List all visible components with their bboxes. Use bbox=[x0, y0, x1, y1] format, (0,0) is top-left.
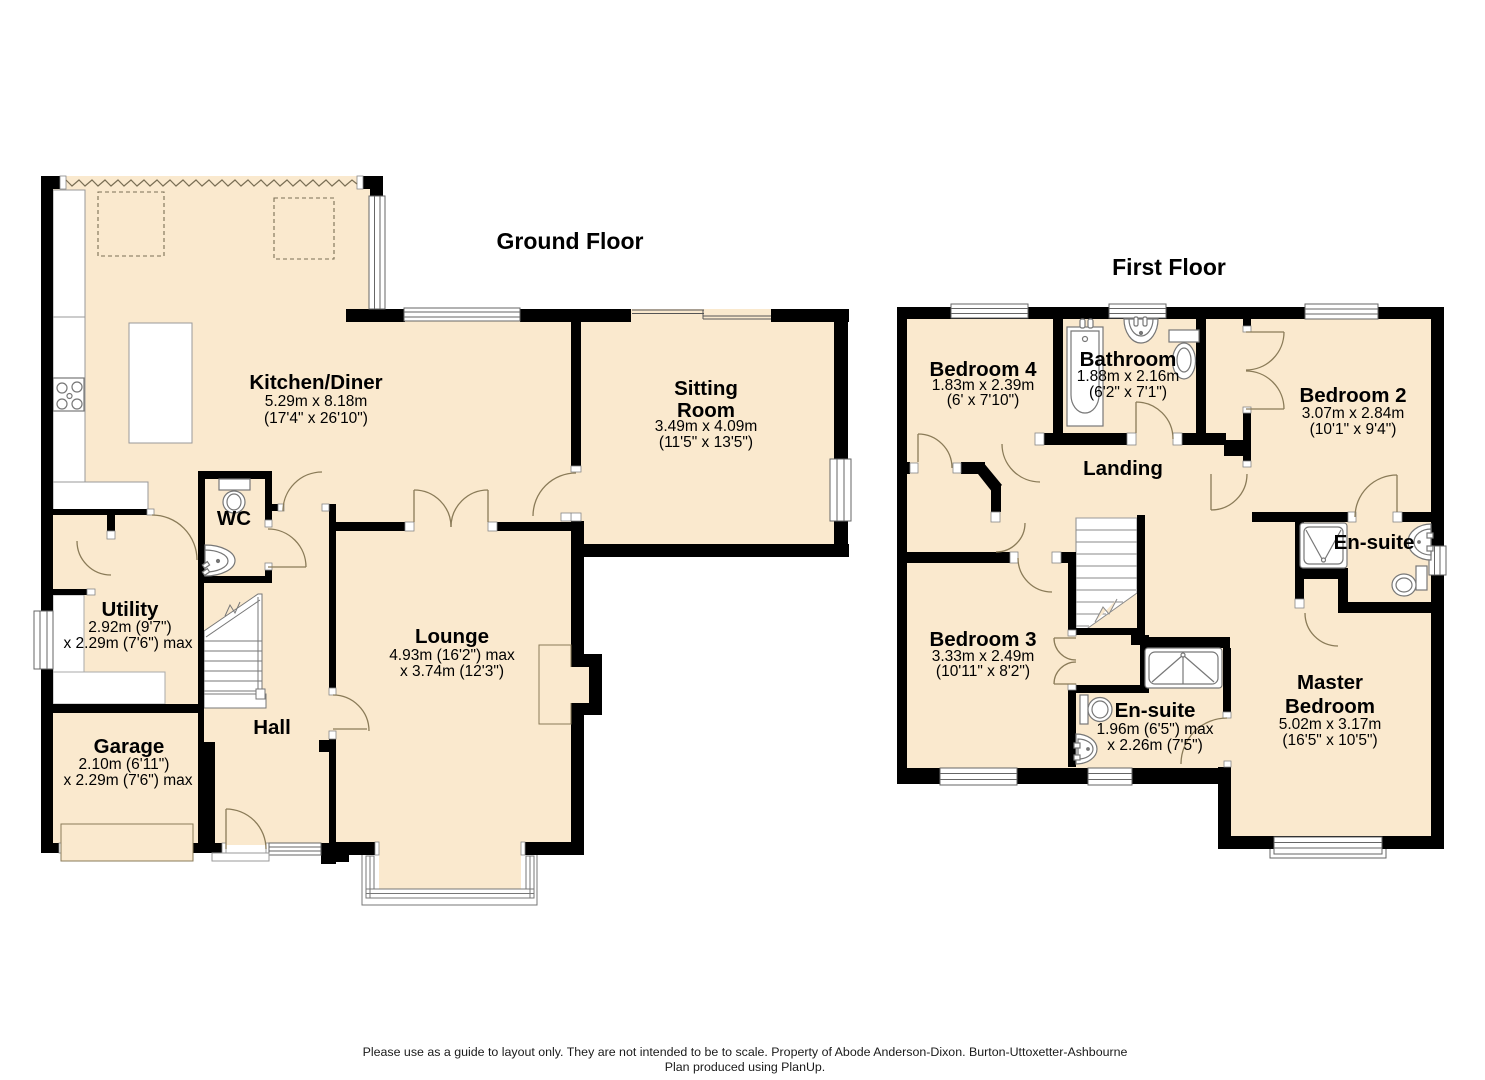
svg-text:(16'5" x 10'5"): (16'5" x 10'5") bbox=[1282, 732, 1377, 749]
svg-text:x 2.26m (7'5"): x 2.26m (7'5") bbox=[1107, 737, 1202, 754]
svg-text:3.49m x 4.09m: 3.49m x 4.09m bbox=[655, 418, 758, 435]
svg-text:Master: Master bbox=[1297, 671, 1363, 694]
svg-text:(17'4" x 26'10"): (17'4" x 26'10") bbox=[264, 410, 368, 427]
svg-text:First Floor: First Floor bbox=[1112, 254, 1226, 280]
svg-text:(6' x 7'10"): (6' x 7'10") bbox=[947, 392, 1020, 409]
svg-text:2.92m (9'7"): 2.92m (9'7") bbox=[88, 619, 171, 636]
svg-text:3.07m x 2.84m: 3.07m x 2.84m bbox=[1302, 405, 1405, 422]
svg-text:Plan produced using PlanUp.: Plan produced using PlanUp. bbox=[665, 1060, 826, 1074]
svg-text:Sitting: Sitting bbox=[674, 377, 738, 400]
svg-text:En-suite: En-suite bbox=[1115, 699, 1196, 722]
svg-text:(10'11" x 8'2"): (10'11" x 8'2") bbox=[936, 663, 1030, 680]
svg-text:Bedroom: Bedroom bbox=[1285, 695, 1375, 718]
svg-text:2.10m (6'11"): 2.10m (6'11") bbox=[79, 756, 170, 773]
svg-text:Please use as a guide to layou: Please use as a guide to layout only. Th… bbox=[363, 1045, 1128, 1059]
svg-text:1.88m x 2.16m: 1.88m x 2.16m bbox=[1077, 368, 1180, 385]
svg-text:(11'5" x 13'5"): (11'5" x 13'5") bbox=[659, 434, 753, 451]
svg-text:4.93m (16'2") max: 4.93m (16'2") max bbox=[389, 647, 515, 664]
svg-text:Utility: Utility bbox=[102, 598, 160, 621]
svg-text:x 2.29m (7'6") max: x 2.29m (7'6") max bbox=[63, 772, 192, 789]
svg-text:5.02m x 3.17m: 5.02m x 3.17m bbox=[1279, 716, 1382, 733]
svg-text:5.29m x 8.18m: 5.29m x 8.18m bbox=[265, 393, 368, 410]
svg-text:x 3.74m (12'3"): x 3.74m (12'3") bbox=[400, 663, 504, 680]
svg-text:Garage: Garage bbox=[94, 735, 165, 758]
svg-text:Kitchen/Diner: Kitchen/Diner bbox=[249, 371, 382, 394]
svg-text:WC: WC bbox=[217, 507, 251, 530]
svg-text:(6'2" x 7'1"): (6'2" x 7'1") bbox=[1089, 384, 1167, 401]
svg-text:(10'1" x 9'4"): (10'1" x 9'4") bbox=[1310, 421, 1397, 438]
svg-text:Ground Floor: Ground Floor bbox=[497, 228, 644, 254]
svg-text:x 2.29m (7'6") max: x 2.29m (7'6") max bbox=[63, 635, 192, 652]
svg-text:En-suite: En-suite bbox=[1334, 531, 1415, 554]
svg-text:Landing: Landing bbox=[1083, 457, 1163, 480]
svg-text:Lounge: Lounge bbox=[415, 625, 489, 648]
svg-text:1.96m (6'5") max: 1.96m (6'5") max bbox=[1097, 721, 1214, 738]
svg-text:Hall: Hall bbox=[253, 716, 291, 739]
svg-text:Bedroom 2: Bedroom 2 bbox=[1299, 384, 1406, 407]
